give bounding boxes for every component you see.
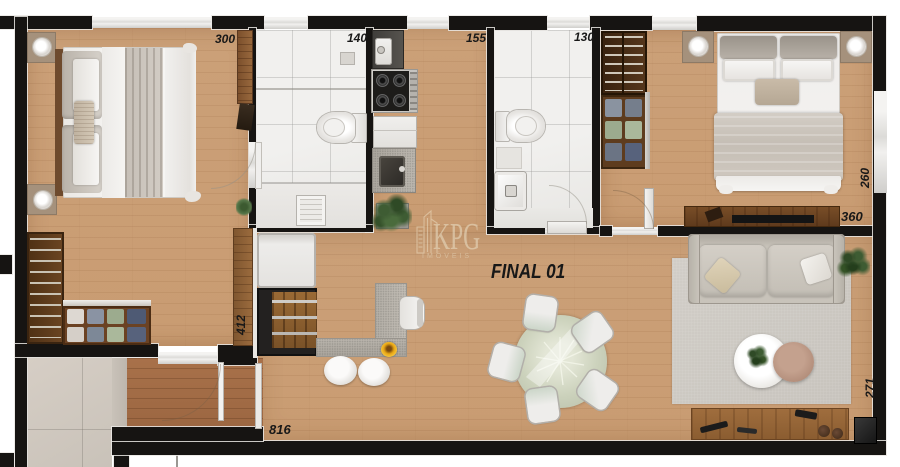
svg-text:KPG: KPG xyxy=(433,215,480,257)
svg-text:IMÓVEIS: IMÓVEIS xyxy=(422,251,472,259)
